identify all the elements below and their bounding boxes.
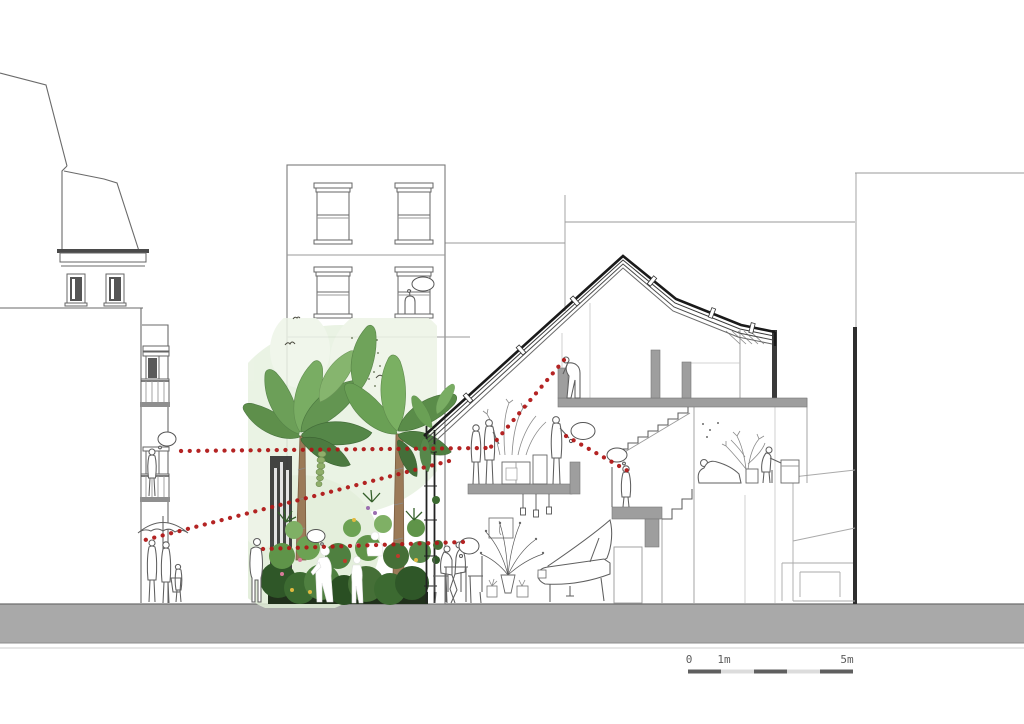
- far-left-roof: [0, 73, 67, 166]
- mansard-roof: [64, 171, 139, 251]
- keyboard: [538, 570, 546, 578]
- mansard-eave: [57, 249, 149, 253]
- wall-stud: [682, 362, 691, 398]
- sash-window: [314, 183, 352, 244]
- mansard-left-edge: [62, 166, 67, 249]
- desk: [781, 460, 799, 483]
- person-mezzanine-1: [471, 425, 480, 484]
- scale-label-0: 0: [686, 653, 693, 666]
- stair-core: [612, 407, 692, 603]
- tree-speckles: [702, 422, 719, 438]
- scale-bar: 0 1m 5m: [686, 653, 854, 674]
- person-umbrella-1: [147, 540, 156, 602]
- person-mezzanine-3: [551, 417, 569, 484]
- mansard-windows: [65, 274, 126, 306]
- speech-bubble: [571, 423, 595, 440]
- ground-floor-group: [433, 518, 612, 603]
- ground-strip: [0, 604, 1024, 643]
- stair-landing: [612, 507, 662, 519]
- street-figures: [138, 516, 263, 603]
- vase: [501, 575, 515, 593]
- balcony-slab: [140, 402, 170, 407]
- pot: [487, 586, 497, 597]
- speech-bubble-tail: [623, 462, 626, 465]
- sash-window: [314, 267, 352, 318]
- grand-piano: [538, 520, 612, 602]
- speech-bubble-tail: [460, 555, 463, 558]
- balcony-unit-upper: [140, 352, 170, 407]
- left-buildings: [0, 73, 176, 603]
- speech-bubble-tail: [159, 446, 162, 449]
- scale-label-5m: 5m: [840, 653, 854, 666]
- attic-slab: [558, 398, 807, 407]
- section-drawing-canvas: 0 1m 5m: [0, 0, 1024, 724]
- mezzanine-parapet: [570, 462, 580, 494]
- scale-label-1m: 1m: [717, 653, 731, 666]
- crate-small: [506, 468, 517, 480]
- lower-stair-steps: [662, 489, 692, 519]
- stair-stringer: [618, 413, 690, 456]
- roof-battens: [463, 276, 755, 403]
- balcony-slab: [140, 497, 170, 502]
- person-at-desk: [762, 447, 781, 483]
- background-skyline: [445, 173, 1024, 327]
- crate: [533, 455, 547, 484]
- speech-bubble: [307, 530, 325, 543]
- person-umbrella-2: [161, 542, 170, 603]
- speech-bubble: [158, 432, 176, 446]
- ground: [0, 604, 1024, 648]
- sash-window-with-person: [395, 267, 434, 318]
- perspective-room: [782, 470, 855, 601]
- pendant-lights: [521, 494, 552, 517]
- mezzanine-slab: [468, 484, 572, 494]
- person-reclining: [698, 460, 741, 484]
- party-wall: [853, 327, 857, 604]
- stair-wall: [645, 519, 659, 547]
- roof: [424, 256, 775, 448]
- speech-bubble-tail: [321, 543, 324, 546]
- pot: [517, 586, 528, 597]
- piano-body: [538, 559, 610, 584]
- speech-bubble: [412, 277, 434, 291]
- upper-stair-steps: [618, 407, 688, 449]
- speech-bubble-tail: [408, 290, 411, 293]
- speech-bubble: [607, 448, 627, 462]
- bay-cornice: [143, 346, 169, 351]
- person-mezzanine-2: [484, 420, 499, 484]
- plant-pot: [746, 469, 758, 483]
- chair: [468, 556, 483, 603]
- umbrella-group: [138, 516, 188, 603]
- sash-window: [395, 183, 433, 244]
- door-under-stair: [614, 547, 642, 603]
- neighbour-room: [698, 422, 799, 483]
- person-stair-landing: [607, 448, 631, 507]
- section-drawing: 0 1m 5m: [0, 0, 1024, 724]
- mansard-cornice: [60, 253, 146, 262]
- scale-segments-dark: [688, 670, 853, 674]
- wall-stud: [651, 350, 660, 398]
